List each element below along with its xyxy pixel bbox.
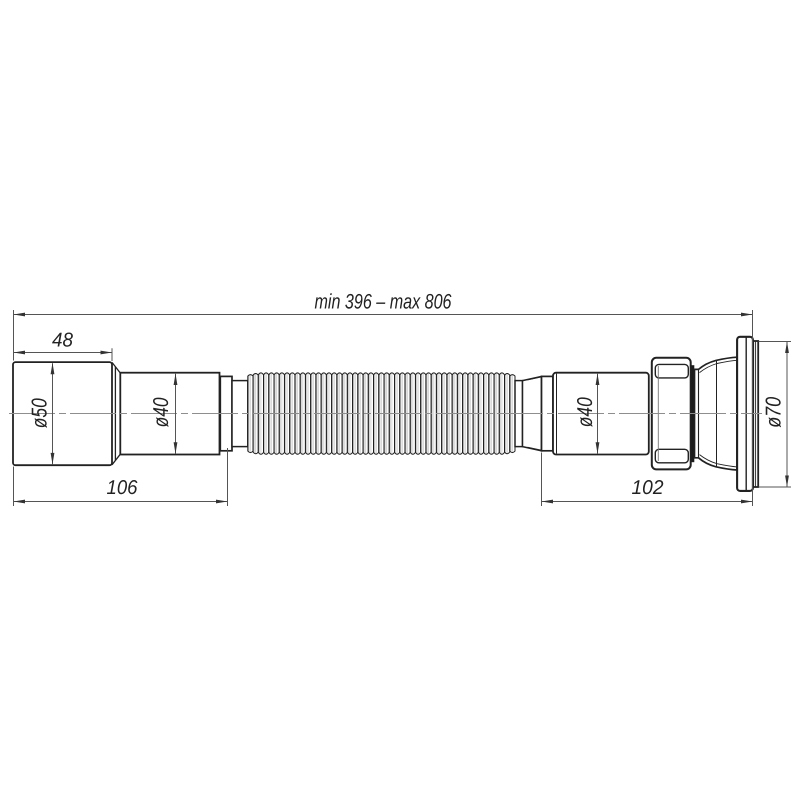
- svg-text:ø70: ø70: [762, 397, 786, 428]
- svg-text:ø40: ø40: [149, 397, 173, 427]
- svg-text:ø40: ø40: [573, 397, 597, 427]
- svg-text:min 396 – max 806: min 396 – max 806: [315, 291, 452, 314]
- svg-text:48: 48: [52, 329, 73, 351]
- svg-text:102: 102: [632, 477, 664, 499]
- svg-text:106: 106: [107, 477, 139, 499]
- svg-text:ø50: ø50: [27, 398, 51, 428]
